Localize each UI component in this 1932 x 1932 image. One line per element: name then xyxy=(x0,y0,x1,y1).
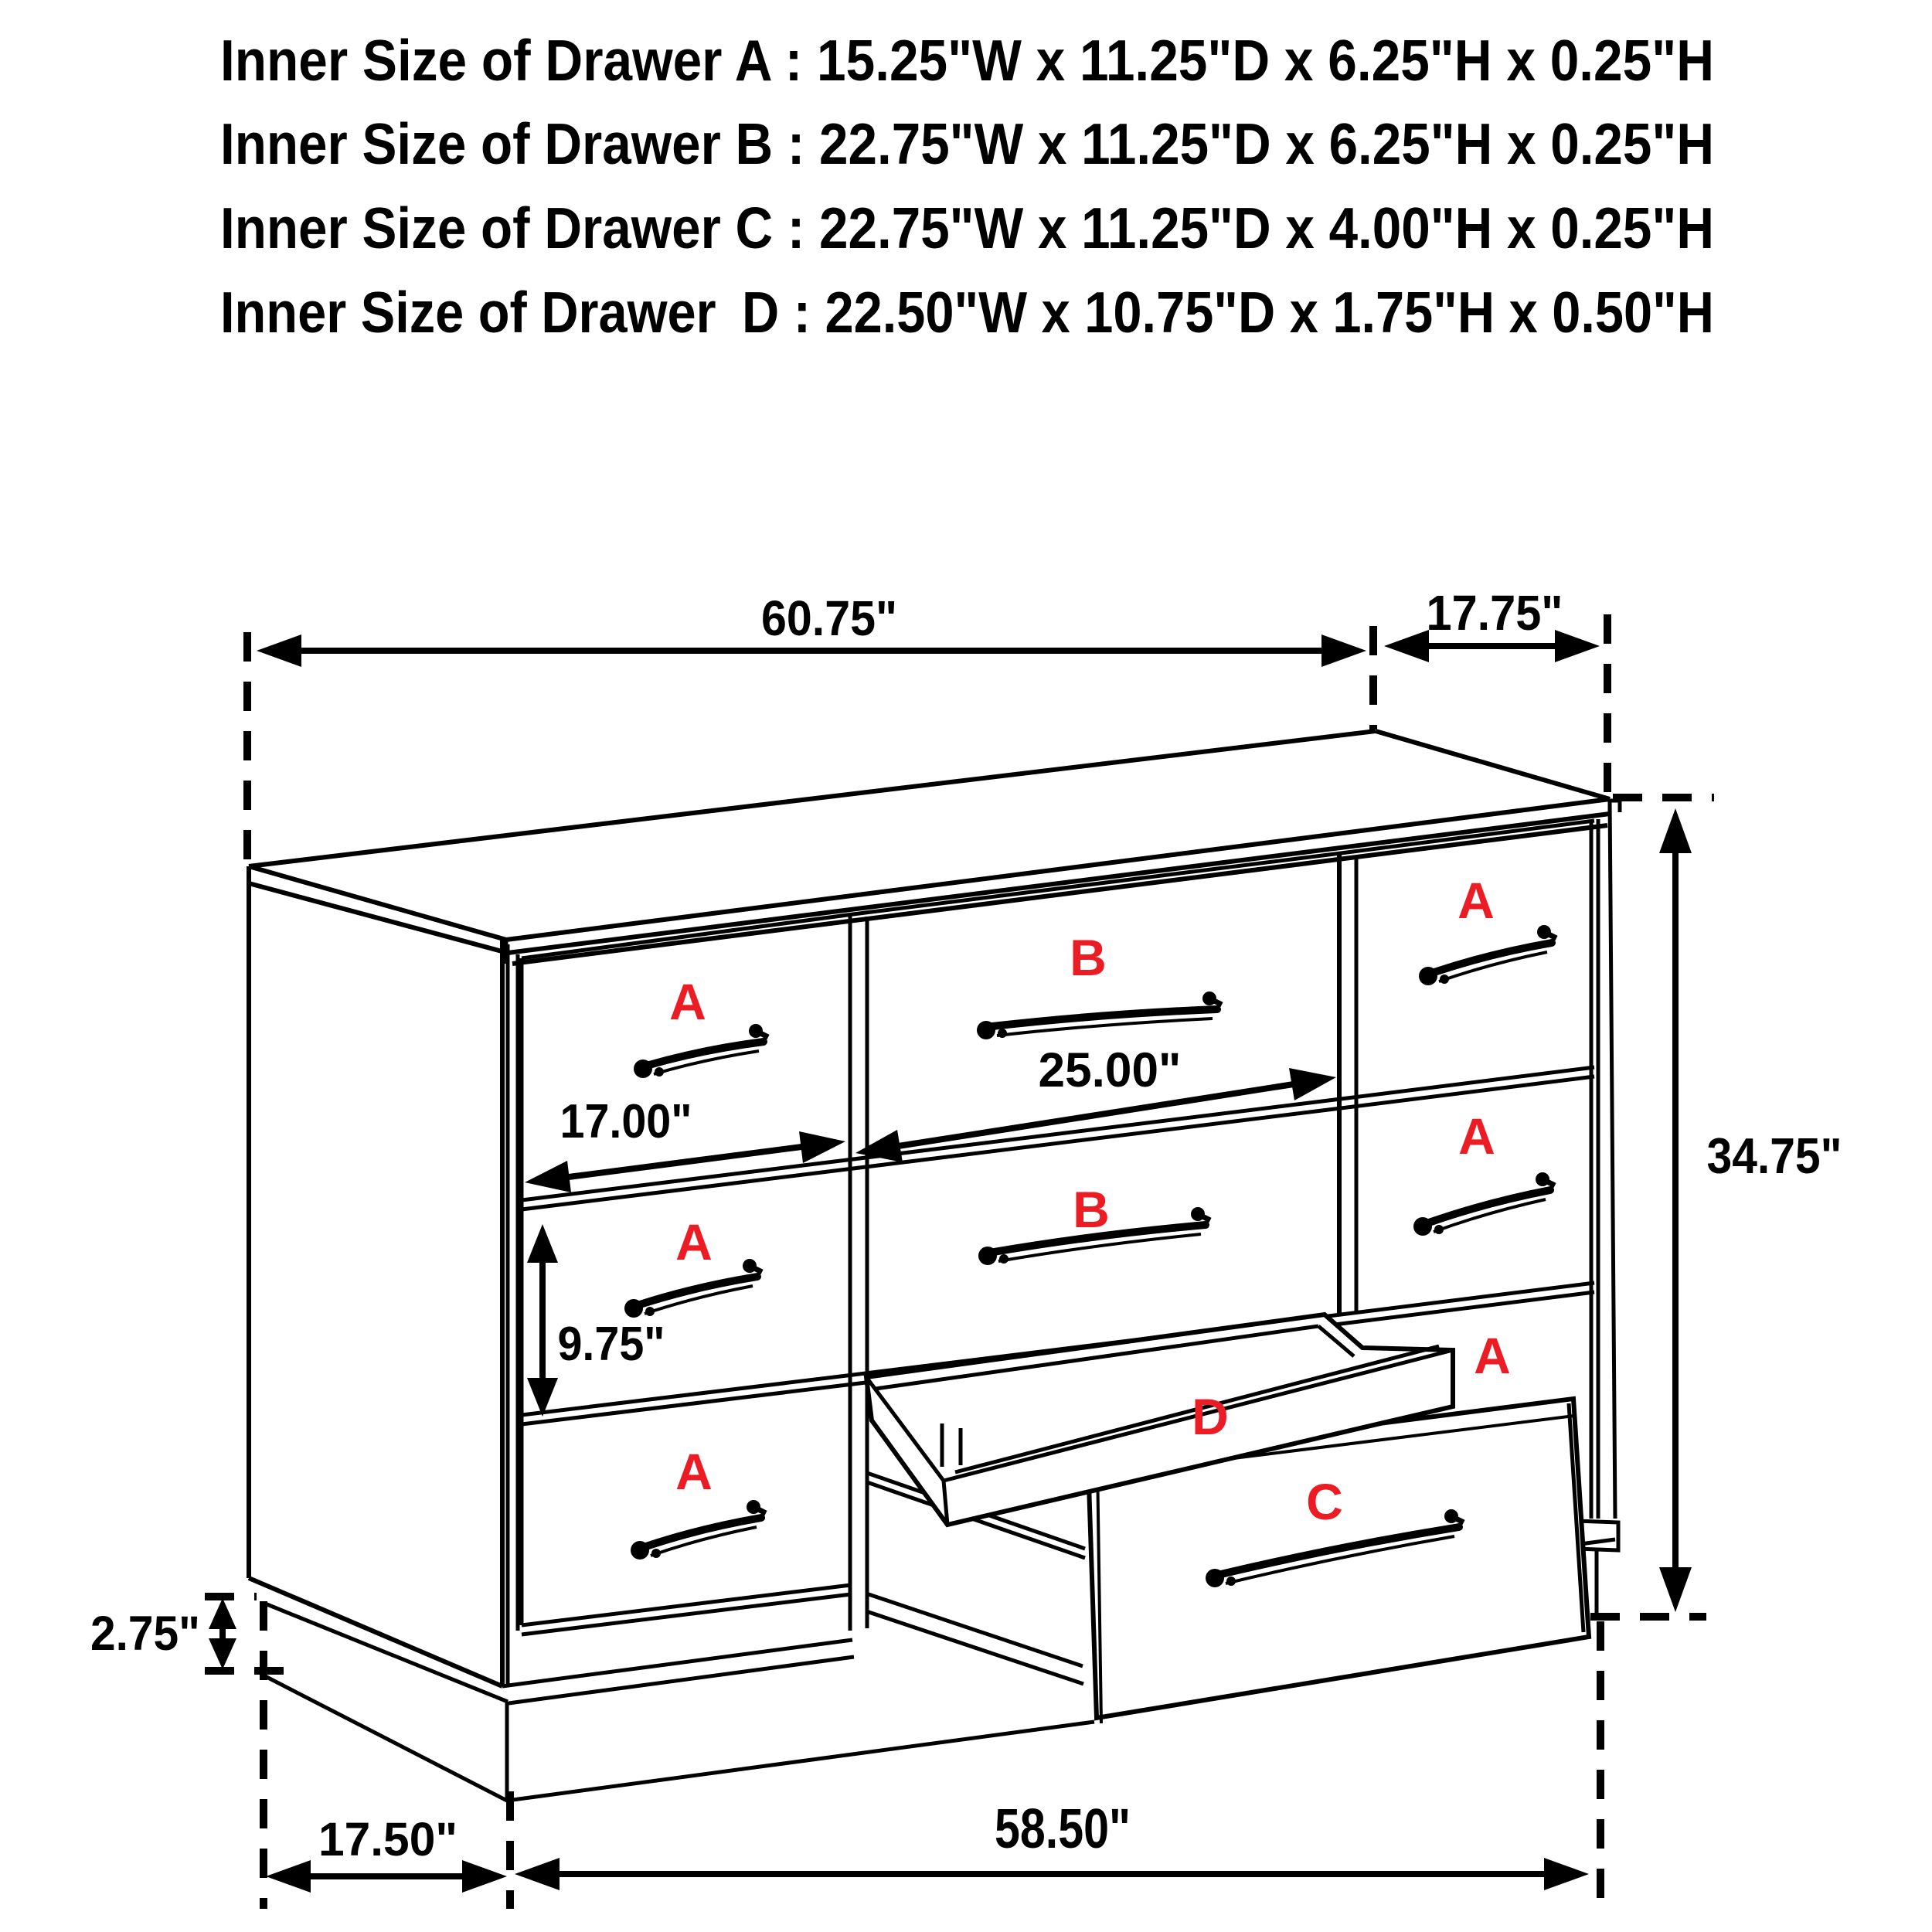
svg-text:9.75": 9.75" xyxy=(558,1318,665,1371)
svg-text:2.75": 2.75" xyxy=(90,1607,200,1661)
svg-text:A: A xyxy=(675,1213,713,1270)
svg-text:A: A xyxy=(675,1443,713,1500)
svg-text:D: D xyxy=(1192,1388,1229,1445)
svg-text:Inner Size of Drawer B : 22.75: Inner Size of Drawer B : 22.75"W x 11.25… xyxy=(220,111,1714,176)
svg-text:B: B xyxy=(1073,1181,1110,1238)
svg-text:60.75": 60.75" xyxy=(761,590,897,646)
svg-text:17.00": 17.00" xyxy=(560,1095,692,1148)
svg-text:58.50": 58.50" xyxy=(995,1798,1131,1860)
svg-text:A: A xyxy=(1458,1107,1495,1165)
svg-text:34.75": 34.75" xyxy=(1707,1128,1842,1184)
svg-text:17.50": 17.50" xyxy=(318,1813,457,1866)
svg-text:A: A xyxy=(1458,872,1495,929)
svg-text:Inner Size of Drawer C : 22.75: Inner Size of Drawer C : 22.75"W x 11.25… xyxy=(220,196,1714,260)
svg-text:25.00": 25.00" xyxy=(1039,1043,1182,1097)
svg-text:C: C xyxy=(1306,1473,1343,1530)
svg-text:Inner Size of Drawer A : 15.25: Inner Size of Drawer A : 15.25"W x 11.25… xyxy=(220,28,1714,93)
svg-text:17.75": 17.75" xyxy=(1427,585,1563,641)
svg-text:A: A xyxy=(669,973,706,1030)
svg-text:Inner Size of Drawer D : 22.50: Inner Size of Drawer D : 22.50"W x 10.75… xyxy=(220,280,1714,345)
svg-text:B: B xyxy=(1070,929,1107,986)
svg-text:A: A xyxy=(1474,1327,1511,1384)
